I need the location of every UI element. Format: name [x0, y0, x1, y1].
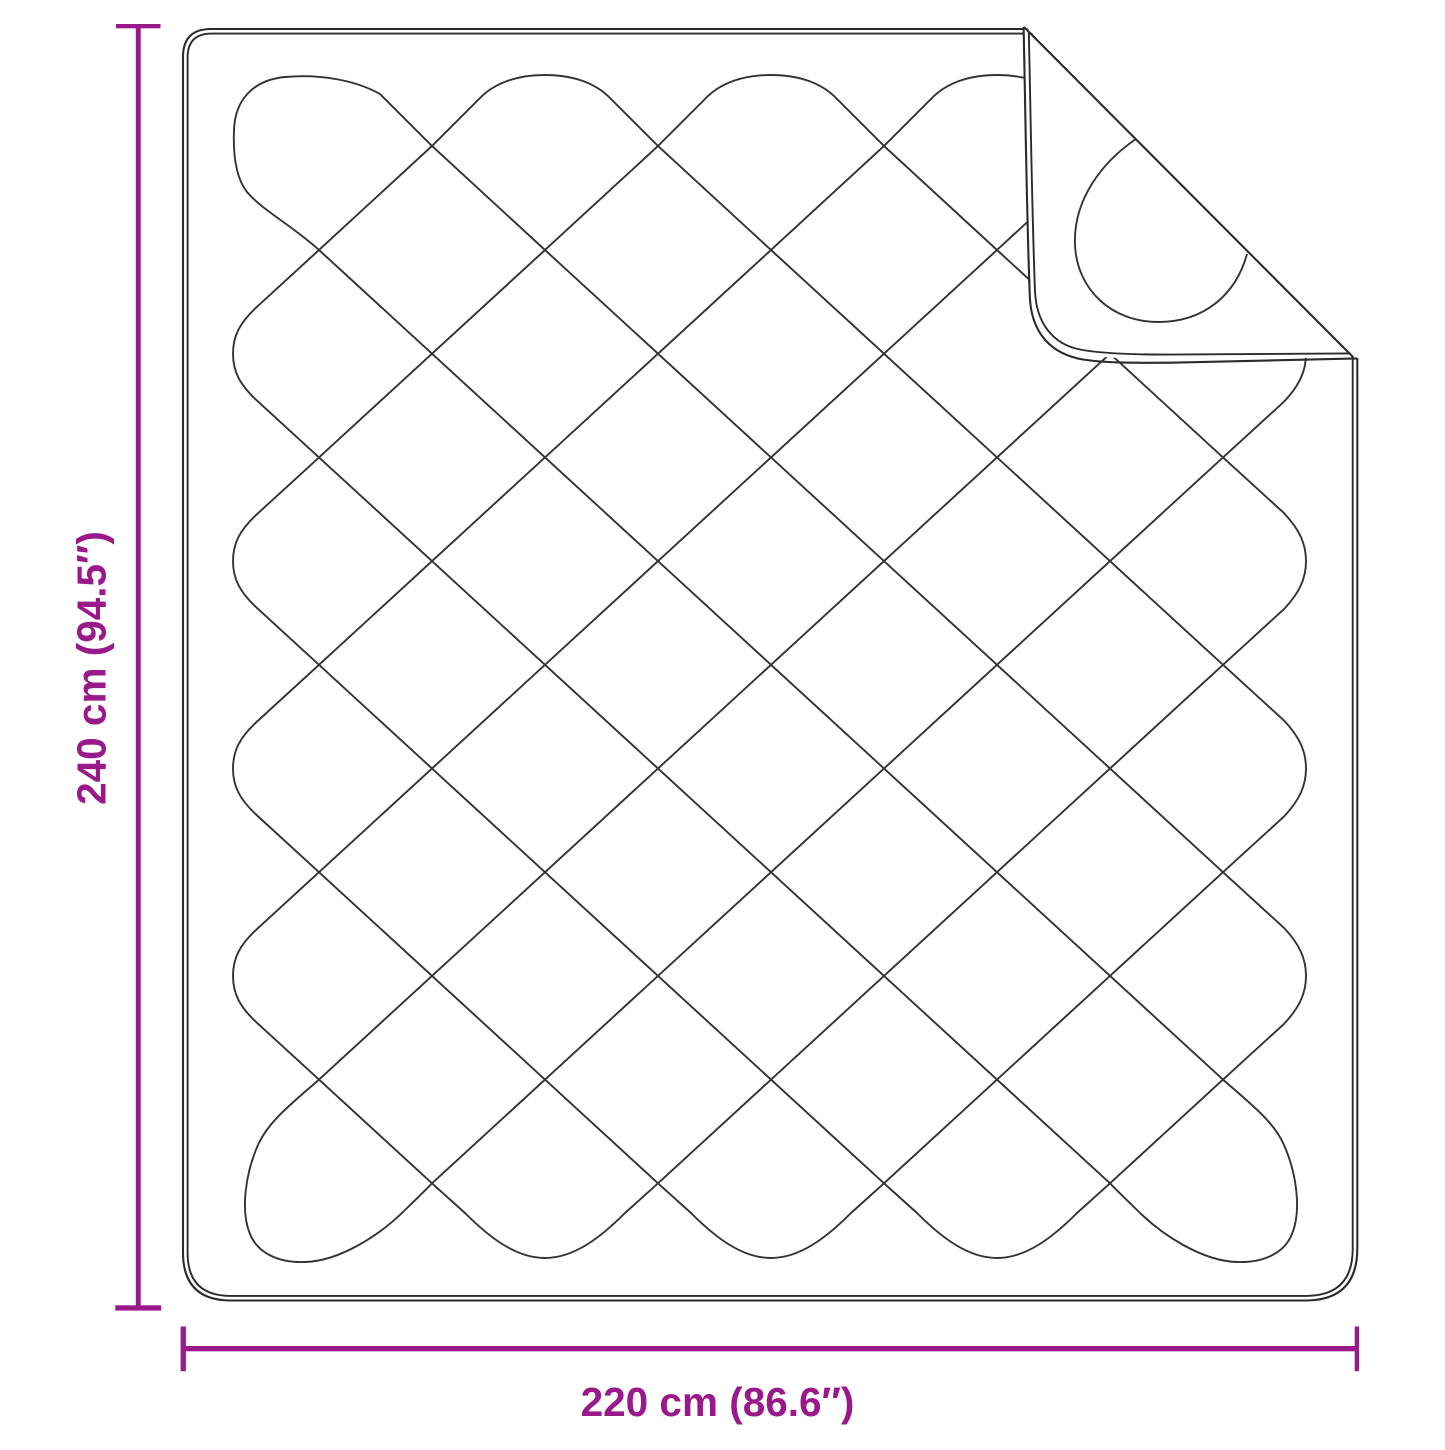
svg-text:220 cm (86.6″): 220 cm (86.6″): [581, 1379, 855, 1425]
svg-text:240 cm (94.5″): 240 cm (94.5″): [69, 531, 115, 805]
